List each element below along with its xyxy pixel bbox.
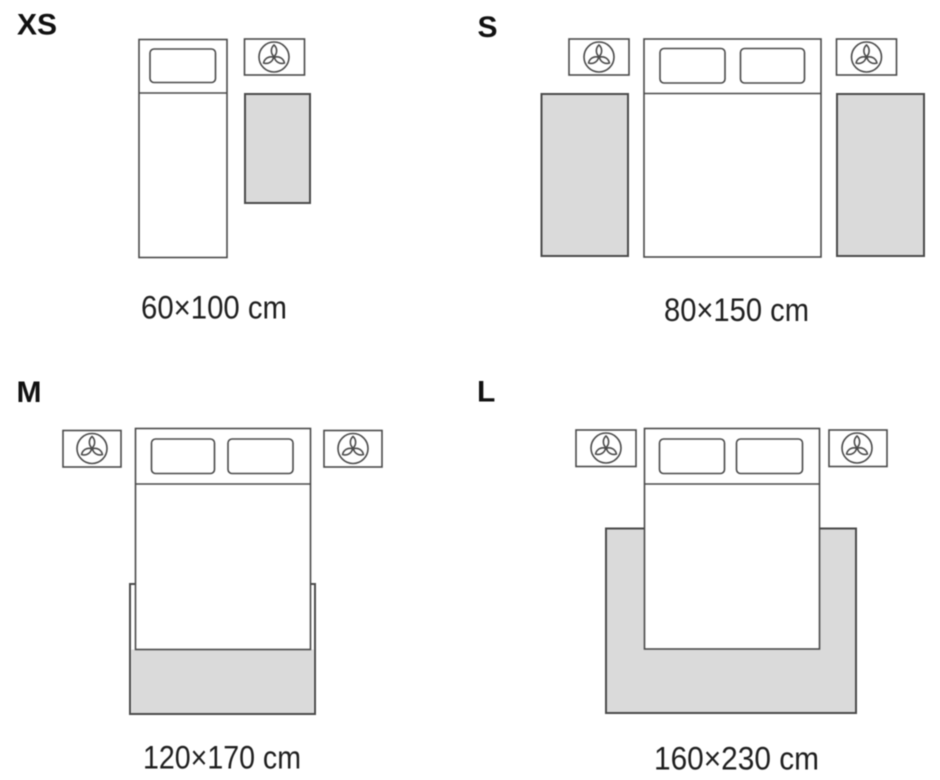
svg-text:80×150 cm: 80×150 cm — [664, 292, 809, 328]
svg-text:XS: XS — [17, 9, 57, 42]
svg-text:60×100 cm: 60×100 cm — [141, 290, 287, 326]
svg-text:L: L — [477, 376, 495, 409]
svg-text:S: S — [478, 11, 498, 44]
svg-text:120×170 cm: 120×170 cm — [143, 740, 301, 776]
svg-text:M: M — [17, 376, 42, 409]
svg-text:160×230 cm: 160×230 cm — [654, 741, 819, 777]
